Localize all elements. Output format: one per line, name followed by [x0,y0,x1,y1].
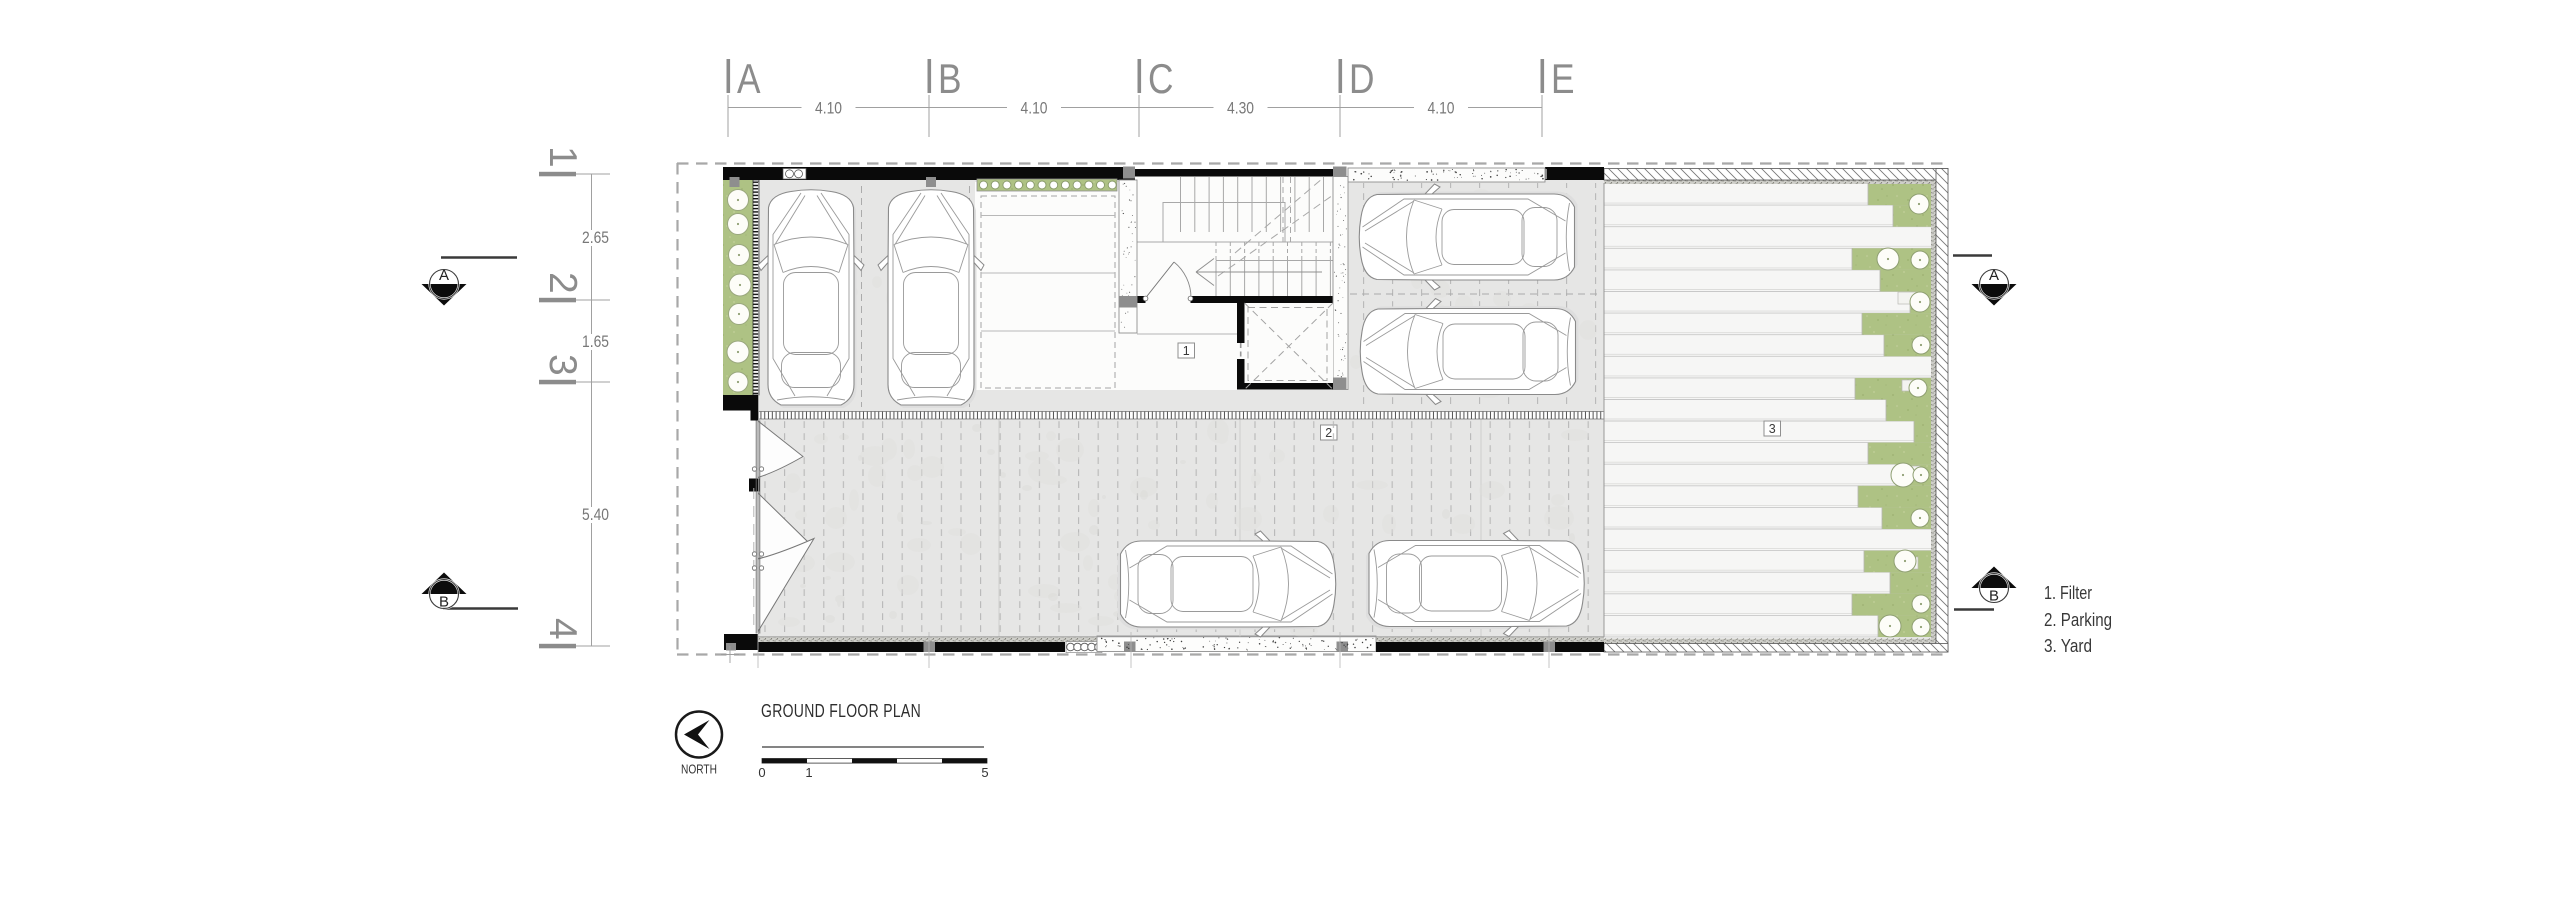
svg-text:5: 5 [981,765,988,780]
svg-text:0: 0 [758,765,765,780]
svg-text:4.10: 4.10 [815,99,842,118]
svg-text:C: C [1148,56,1173,103]
svg-text:1: 1 [805,765,812,780]
svg-text:B: B [439,594,449,611]
svg-text:4.30: 4.30 [1227,99,1254,118]
svg-text:A: A [1989,267,1999,284]
svg-text:4: 4 [541,618,584,640]
svg-text:B: B [1989,588,1999,605]
svg-text:4.10: 4.10 [1021,99,1048,118]
svg-text:E: E [1551,56,1575,103]
svg-text:2. Parking: 2. Parking [2044,610,2112,630]
svg-text:A: A [439,267,449,284]
svg-text:GROUND FLOOR PLAN: GROUND FLOOR PLAN [761,701,921,721]
svg-text:1: 1 [541,146,584,168]
svg-text:1.65: 1.65 [582,332,609,351]
svg-text:4.10: 4.10 [1428,99,1455,118]
svg-text:1: 1 [1183,344,1190,358]
svg-text:3: 3 [541,354,584,376]
svg-text:B: B [938,56,962,103]
svg-text:2: 2 [541,272,584,294]
svg-text:3: 3 [1769,422,1776,436]
svg-text:2.65: 2.65 [582,228,609,247]
svg-text:D: D [1349,56,1374,103]
svg-text:NORTH: NORTH [681,762,717,777]
svg-text:1. Filter: 1. Filter [2044,583,2092,603]
svg-text:3. Yard: 3. Yard [2044,636,2092,656]
svg-text:A: A [737,56,761,103]
svg-text:5.40: 5.40 [582,505,609,524]
